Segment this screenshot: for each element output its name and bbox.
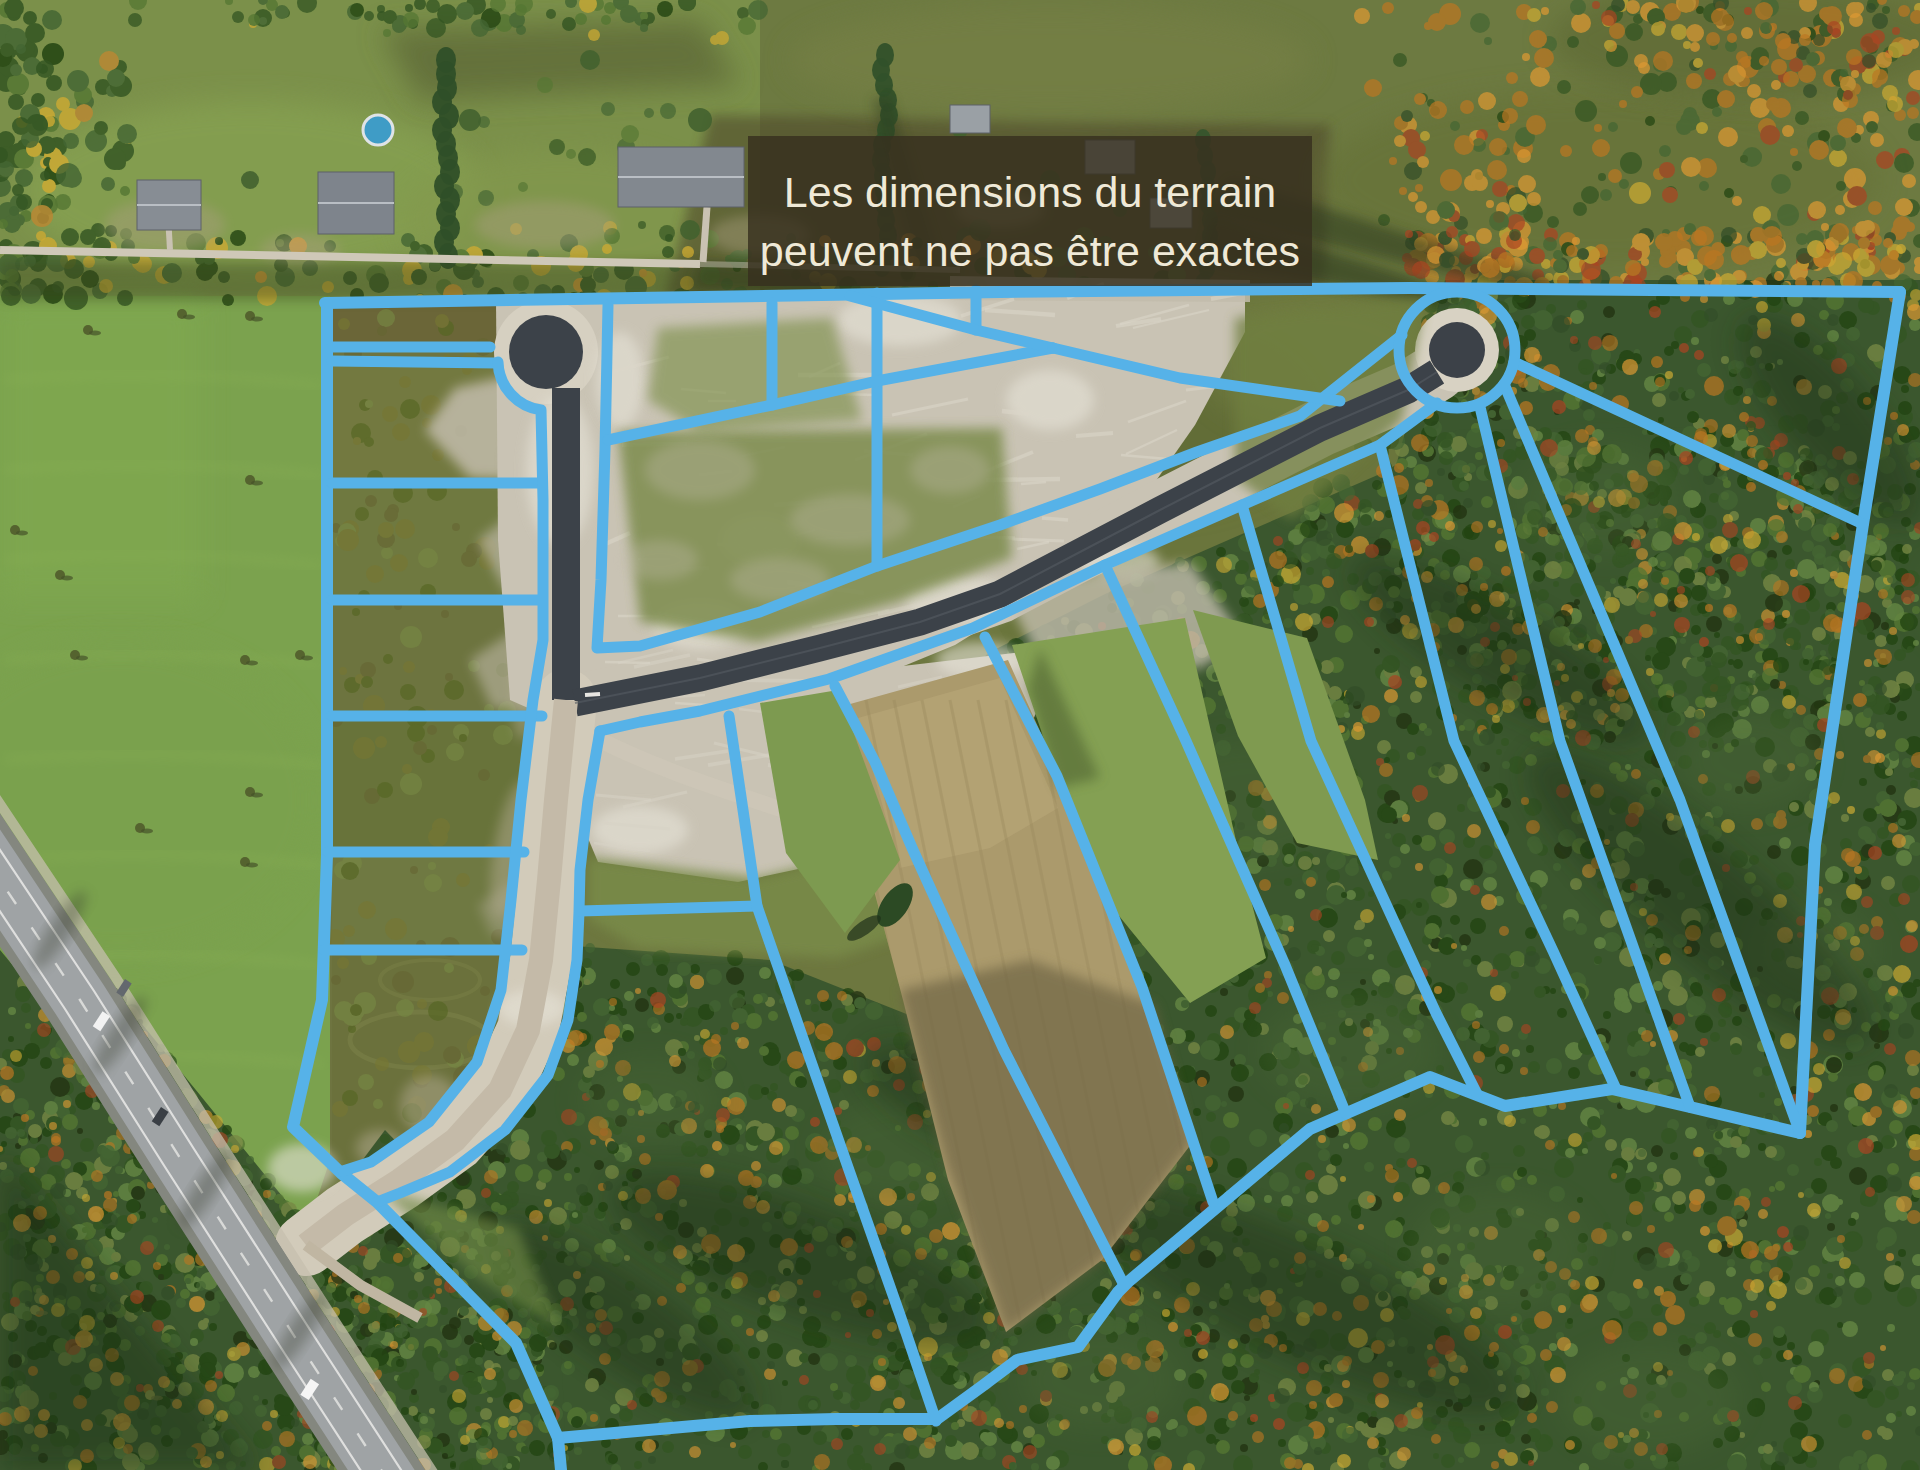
svg-text:peuvent ne pas être exactes: peuvent ne pas être exactes — [760, 227, 1300, 275]
svg-text:Les dimensions du terrain: Les dimensions du terrain — [784, 168, 1276, 216]
